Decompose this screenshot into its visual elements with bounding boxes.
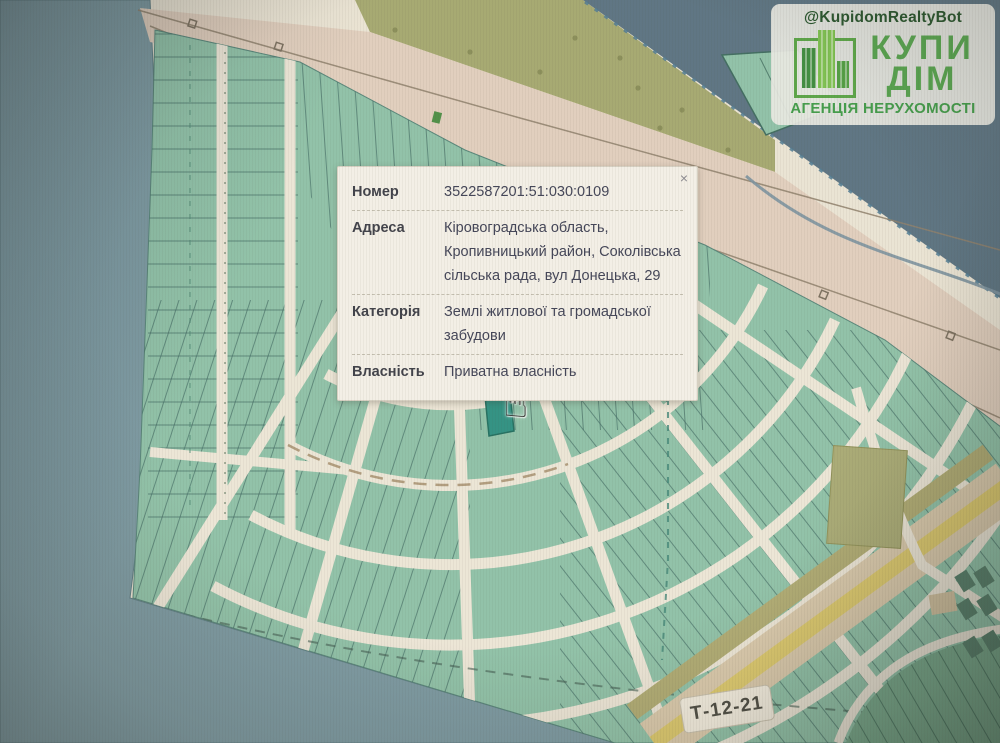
info-label: Категорія	[352, 300, 444, 348]
info-label: Власність	[352, 360, 444, 384]
info-row-address: Адреса Кіровоградська область, Кропивниц…	[352, 210, 683, 294]
info-value: 3522587201:51:030:0109	[444, 180, 609, 204]
info-value: Землі житлової та громадської забудови	[444, 300, 683, 348]
olive-parcel	[827, 446, 908, 549]
building-light	[818, 30, 835, 88]
screen-photo: × Номер 3522587201:51:030:0109 Адреса Кі…	[0, 0, 1000, 743]
brand-line-2: ДІМ	[870, 64, 974, 96]
info-label: Адреса	[352, 216, 444, 288]
agency-tagline: АГЕНЦІЯ НЕРУХОМОСТІ	[777, 100, 989, 117]
brand-text: КУПИ ДІМ	[870, 33, 974, 96]
info-row-ownership: Власність Приватна власність	[352, 354, 683, 390]
info-label: Номер	[352, 180, 444, 204]
watermark-logo: @KupidomRealtyBot КУПИ ДІМ АГЕНЦІЯ НЕРУХ…	[771, 4, 995, 125]
info-value: Приватна власність	[444, 360, 576, 384]
info-row-number: Номер 3522587201:51:030:0109	[352, 175, 683, 210]
close-icon[interactable]: ×	[680, 171, 688, 185]
info-row-category: Категорія Землі житлової та громадської …	[352, 294, 683, 354]
bot-handle: @KupidomRealtyBot	[777, 9, 989, 27]
parcel-info-popup: × Номер 3522587201:51:030:0109 Адреса Кі…	[337, 166, 698, 401]
buildings-icon	[792, 28, 858, 96]
building-small	[837, 61, 849, 88]
building-dark	[802, 48, 816, 88]
info-value: Кіровоградська область, Кропивницький ра…	[444, 216, 683, 288]
